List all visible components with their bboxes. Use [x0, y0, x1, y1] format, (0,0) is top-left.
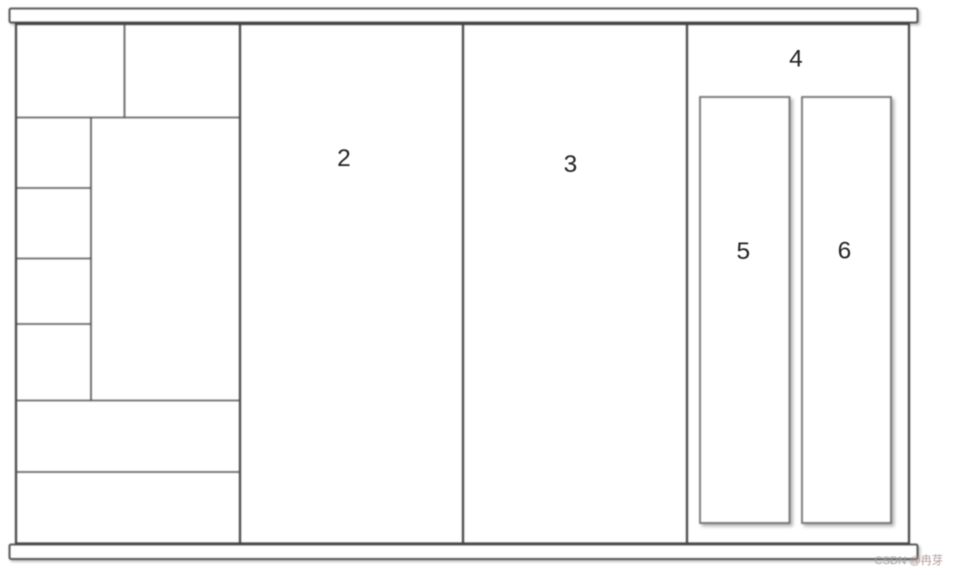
svg-text:CSDN @冉芽: CSDN @冉芽 [875, 553, 944, 567]
svg-text:4: 4 [789, 46, 803, 73]
svg-text:2: 2 [337, 145, 351, 172]
svg-text:6: 6 [838, 237, 852, 264]
svg-text:5: 5 [736, 238, 750, 265]
svg-text:3: 3 [564, 151, 578, 178]
